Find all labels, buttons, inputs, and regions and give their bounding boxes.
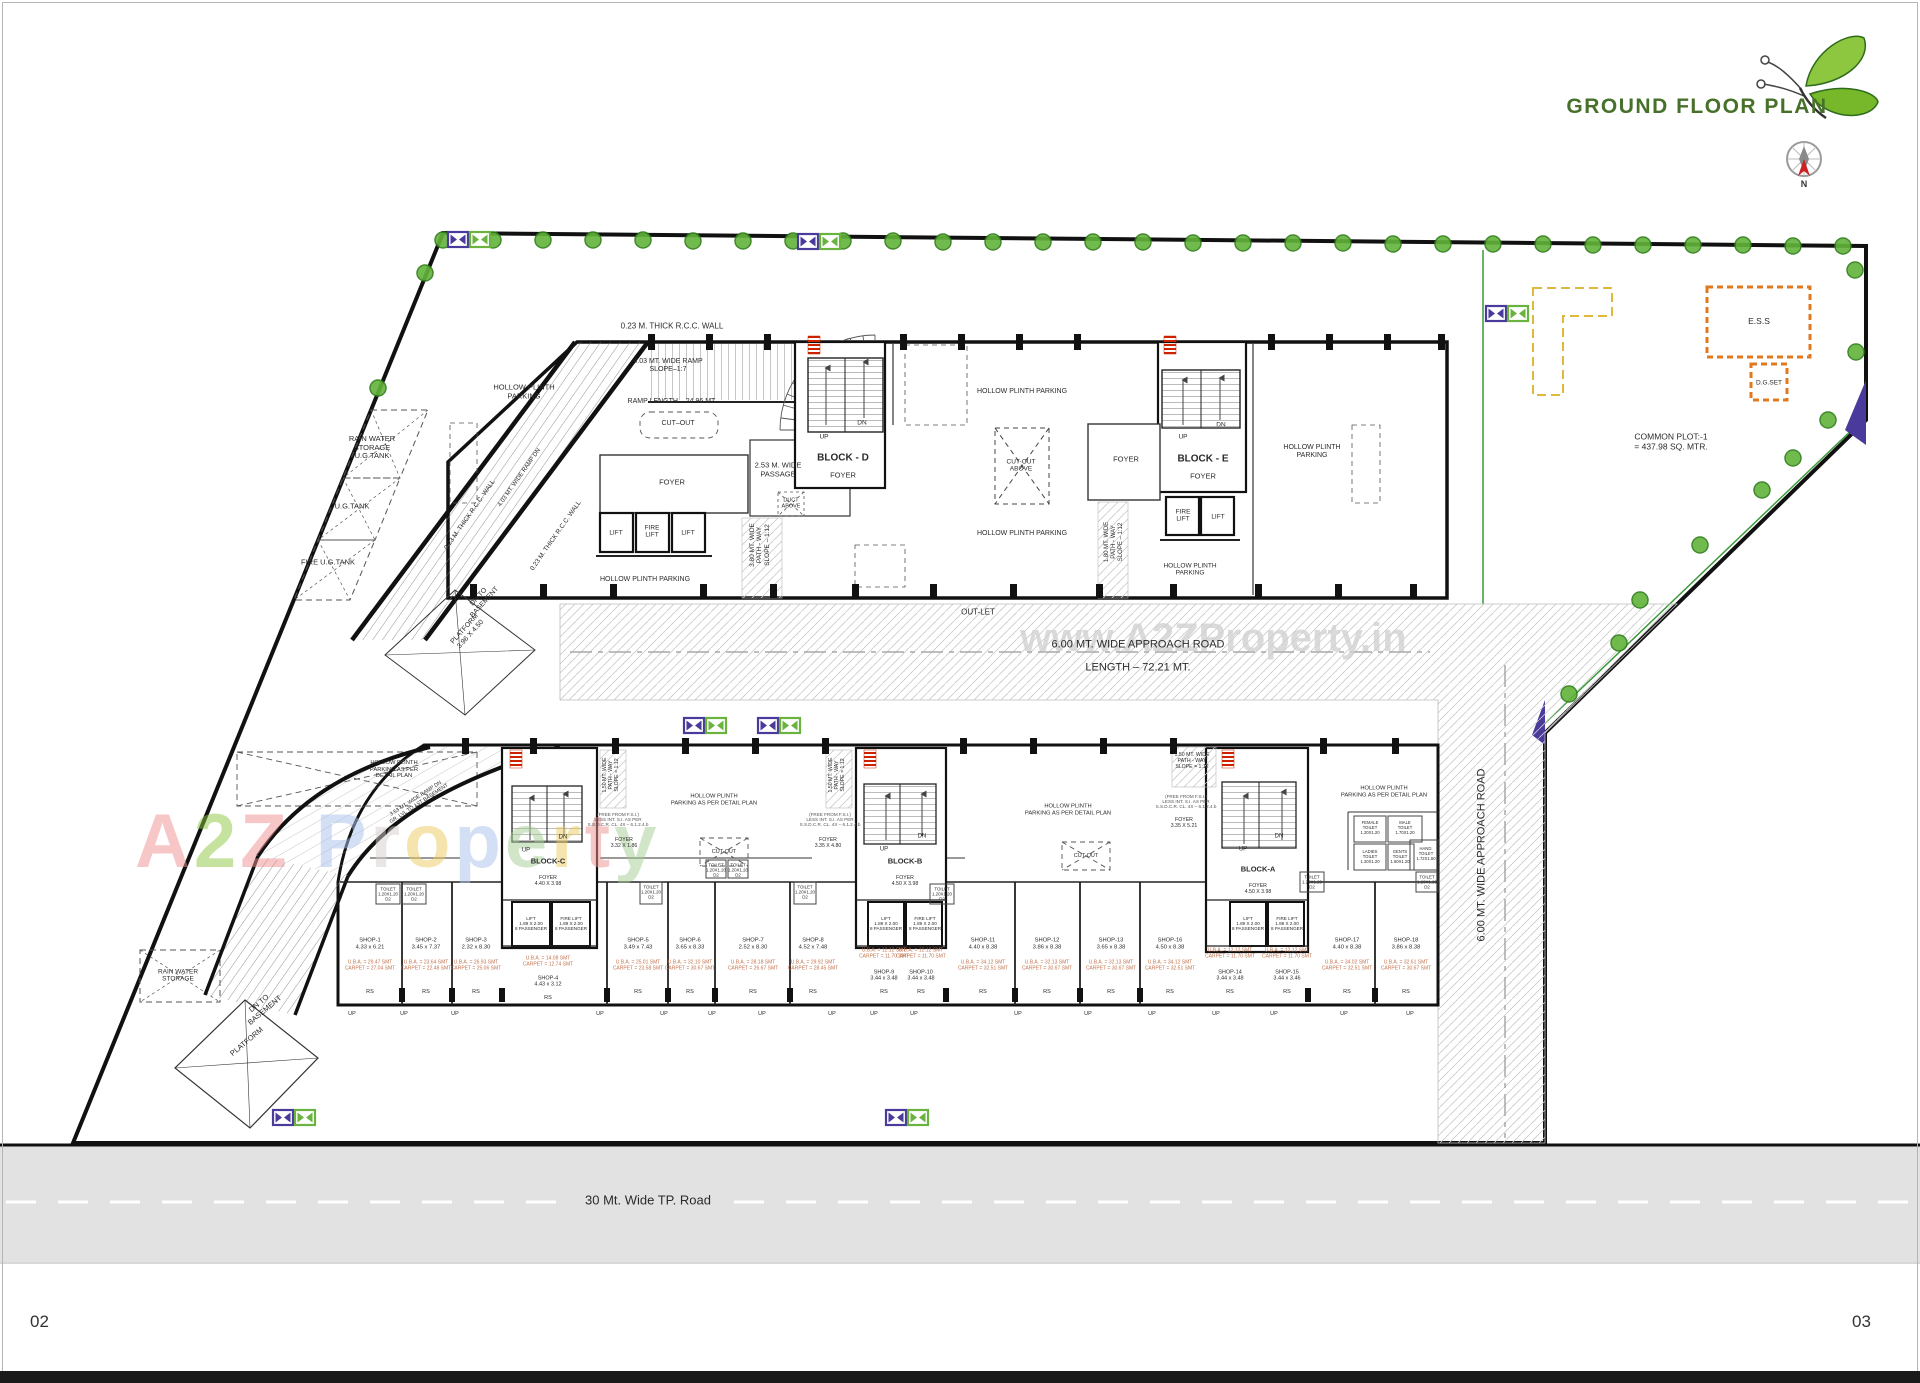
toilet-7: TOILET 1.20X1.20 D2 <box>932 886 952 901</box>
rs-15: RS <box>1226 989 1234 995</box>
ladies-toilet: LADIES TOILET 1.20X1.20 <box>1360 850 1379 864</box>
fire-lift-b: FIRE LIFT 1.89 X 2.00 8 PASSENGER <box>909 916 941 932</box>
shop-3-label: SHOP-3 2.32 x 8.30 <box>462 937 491 950</box>
shop-10-metrics: U.B.A. = 12.12 SMT CARPET = 11.70 SMT <box>896 948 946 959</box>
rs-9: RS <box>880 989 888 995</box>
shop-4-metrics: U.B.A. = 14.08 SMT CARPET = 12.74 SMT <box>523 956 573 967</box>
block-b-foyer: FOYER 4.50 X 3.98 <box>892 876 919 888</box>
shop-17-metrics: U.B.A. = 34.02 SMT CARPET = 32.51 SMT <box>1322 960 1372 971</box>
pathway-150-note-c: 1.50 MT. WIDE PATH - WAY SLOPE = 1:12 <box>1175 753 1210 771</box>
fire-lift-a: FIRE LIFT 1.89 X 2.00 8 PASSENGER <box>1271 916 1303 932</box>
floor-plan-page: A2Z Property www.A2ZProperty.in 0.23 M. … <box>0 0 1920 1383</box>
shop-13-label: SHOP-13 3.65 x 8.38 <box>1097 937 1126 950</box>
block-d-title: BLOCK - D <box>817 452 869 463</box>
cutout-above-upper: CUT-OUT ABOVE <box>1007 459 1036 474</box>
up-8: UP <box>828 1011 836 1017</box>
page-title: GROUND FLOOR PLAN <box>1566 95 1828 119</box>
lift-e: LIFT <box>1211 513 1224 520</box>
shop-12-label: SHOP-12 3.86 x 8.38 <box>1033 937 1062 950</box>
stair-up-block-e: UP <box>1178 433 1187 440</box>
shop-15-metrics: U.B.A. = 12.12 SMT CARPET = 11.70 SMT <box>1262 948 1312 959</box>
stair-up-block-b: UP <box>880 847 888 854</box>
up-7: UP <box>758 1011 766 1017</box>
stair-up-block-a: UP <box>1239 847 1247 854</box>
rs-1: RS <box>366 989 374 995</box>
rs-17: RS <box>1343 989 1351 995</box>
lift-a: LIFT 1.89 X 2.00 8 PASSENGER <box>1232 916 1264 932</box>
shop-5-metrics: U.B.A. = 25.01 SMT CARPET = 23.58 SMT <box>613 960 663 971</box>
shop-8-metrics: U.B.A. = 29.92 SMT CARPET = 28.45 SMT <box>788 960 838 971</box>
rs-2: RS <box>422 989 430 995</box>
shop-2-label: SHOP-2 3.45 x 7.37 <box>412 937 441 950</box>
shop-14-label: SHOP-14 3.44 x 3.48 <box>1216 970 1243 983</box>
rs-7: RS <box>749 989 757 995</box>
cutout-lower-2: CUT-OUT <box>1074 853 1098 859</box>
up-2: UP <box>400 1011 408 1017</box>
gents-toilet: GENTS TOILET 1.50X1.20 <box>1390 850 1409 864</box>
hollow-plinth-detail-3: HOLLOW PLINTH PARKING AS PER DETAIL PLAN <box>1025 803 1111 816</box>
hollow-plinth-parking-upper-left: HOLLOW PLINTH PARKING <box>493 383 554 400</box>
pathway-180-note: 1.80 MT. WIDE PATH - WAY SLOPE – 1:12 <box>1104 522 1124 562</box>
shop-17-label: SHOP-17 4.40 x 8.38 <box>1333 937 1362 950</box>
up-12: UP <box>1084 1011 1092 1017</box>
toilet-4: TOILET 1.20X1.20 D2 <box>706 862 726 877</box>
shop-6-label: SHOP-6 3.65 x 8.33 <box>676 937 705 950</box>
rs-16: RS <box>1283 989 1291 995</box>
stair-dn-block-a: DN <box>1275 834 1284 841</box>
foyer-note-2: (FREE FROM F.S.I.) LESS INT. S.I. AS PER… <box>800 812 861 828</box>
stair-dn-block-b: DN <box>918 834 927 841</box>
rs-3: RS <box>472 989 480 995</box>
rs-10: RS <box>917 989 925 995</box>
tp-road <box>0 1145 1920 1264</box>
lift-2: LIFT <box>681 529 694 536</box>
shop-1-metrics: U.B.A. = 29.47 SMT CARPET = 27.04 SMT <box>345 960 395 971</box>
lift-b: LIFT 1.89 X 2.00 8 PASSENGER <box>870 916 902 932</box>
block-c-foyer: FOYER 4.40 X 3.98 <box>535 876 562 888</box>
block-b-title: BLOCK-B <box>888 858 923 867</box>
toilet-6: TOILET 1.20X1.20 D2 <box>795 884 815 899</box>
female-toilet: FEMALE TOILET 1.20X1.20 <box>1360 821 1379 835</box>
shop-18-metrics: U.B.A. = 32.61 SMT CARPET = 30.67 SMT <box>1381 960 1431 971</box>
compass-icon <box>1787 142 1821 176</box>
foyer-note-3: (FREE FROM F.S.I.) LESS INT. S.I. AS PER… <box>1156 794 1217 810</box>
toilet-2: TOILET 1.20X1.20 D2 <box>404 886 424 901</box>
shop-12-metrics: U.B.A. = 32.13 SMT CARPET = 30.67 SMT <box>1022 960 1072 971</box>
hollow-plinth-detail-1: HOLLOW PLINTH PARKING AS PER DETAIL PLAN <box>370 760 418 780</box>
shop-18-label: SHOP-18 3.86 x 8.38 <box>1392 937 1421 950</box>
toilet-9: TOILET 1.20X1.20 D2 <box>1417 874 1437 889</box>
compass-north-label: N <box>1801 179 1808 189</box>
shop-13-metrics: U.B.A. = 32.13 SMT CARPET = 30.67 SMT <box>1086 960 1136 971</box>
stair-dn-block-c: DN <box>559 835 568 842</box>
pathway-380-note: 3.80 MT. WIDE PATH - WAY SLOPE – 1:12 <box>749 523 771 567</box>
hand-toilet: HAND. TOILET 1.72X1.50 <box>1416 847 1435 861</box>
shop-16-label: SHOP-16 4.50 x 8.38 <box>1156 937 1185 950</box>
hollow-plinth-parking-upper-right: HOLLOW PLINTH PARKING <box>1283 444 1340 460</box>
hollow-plinth-parking-upper-mid-top: HOLLOW PLINTH PARKING <box>977 388 1067 396</box>
rs-14: RS <box>1166 989 1174 995</box>
floor-plan-drawing <box>0 0 1920 1383</box>
block-e-title: BLOCK - E <box>1177 453 1228 464</box>
approach-road-vertical: 6.00 MT. WIDE APPROACH ROAD <box>1476 769 1489 942</box>
rs-8: RS <box>809 989 817 995</box>
shop-15-label: SHOP-15 3.44 x 3.46 <box>1273 970 1300 983</box>
stair-up-block-d: UP <box>819 433 828 440</box>
shop-5-label: SHOP-5 3.49 x 7.43 <box>624 937 653 950</box>
up-6: UP <box>708 1011 716 1017</box>
foyer-dim-1: FOYER 3.32 X 1.86 <box>611 838 638 850</box>
wall-note-top: 0.23 M. THICK R.C.C. WALL <box>621 321 724 330</box>
shop-7-label: SHOP-7 2.52 x 8.30 <box>739 937 768 950</box>
shop-7-metrics: U.B.A. = 28.18 SMT CARPET = 26.67 SMT <box>728 960 778 971</box>
stair-up-block-c: UP <box>522 848 530 855</box>
shop-14-metrics: U.B.A. = 12.12 SMT CARPET = 11.70 SMT <box>1205 948 1255 959</box>
approach-road-label: 6.00 MT. WIDE APPROACH ROAD <box>1052 639 1225 652</box>
passage-note: 2.53 M. WIDE PASSAGE <box>755 461 802 478</box>
male-toilet: MALE TOILET 1.70X1.20 <box>1395 821 1414 835</box>
up-17: UP <box>1406 1011 1414 1017</box>
rs-4: RS <box>544 995 552 1001</box>
up-11: UP <box>1014 1011 1022 1017</box>
ess-label: E.S.S <box>1748 317 1770 327</box>
fire-lift-1: FIRE LIFT <box>645 525 660 540</box>
lift-1: LIFT <box>609 529 622 536</box>
fire-lift-e: FIRE LIFT <box>1176 509 1191 524</box>
shop-1-label: SHOP-1 4.33 x 6.21 <box>356 937 385 950</box>
up-3: UP <box>451 1011 459 1017</box>
shop-2-metrics: U.B.A. = 23.64 SMT CARPET = 22.48 SMT <box>401 960 451 971</box>
cutout-lower-1: CUT-OUT <box>712 849 736 855</box>
toilet-1: TOILET 1.20X1.20 D2 <box>378 886 398 901</box>
rs-18: RS <box>1402 989 1410 995</box>
pathway-150-note-a: 1.50 MT. WIDE PATH - WAY SLOPE = 1:12 <box>603 758 621 793</box>
cutout-upper-label: CUT–OUT <box>661 420 694 428</box>
block-a-title: BLOCK-A <box>1241 866 1276 875</box>
up-5: UP <box>660 1011 668 1017</box>
shop-4-label: SHOP-4 4.43 x 3.12 <box>534 976 561 989</box>
block-c-title: BLOCK-C <box>531 858 566 867</box>
rs-11: RS <box>979 989 987 995</box>
fire-lift-c: FIRE LIFT 1.89 X 2.00 8 PASSENGER <box>555 916 587 932</box>
ramp-width-note: 4.03 MT. WIDE RAMP SLOPE–1:7 <box>633 358 702 374</box>
dg-set-label: D.G.SET <box>1756 379 1782 386</box>
stair-dn-block-e: DN <box>1216 421 1225 428</box>
shop-16-metrics: U.B.A. = 34.12 SMT CARPET = 32.51 SMT <box>1145 960 1195 971</box>
shop-3-metrics: U.B.A. = 26.93 SMT CARPET = 25.06 SMT <box>451 960 501 971</box>
foyer-note-1: (FREE FROM F.S.I.) LESS INT. S.I. AS PER… <box>588 812 649 828</box>
up-13: UP <box>1148 1011 1156 1017</box>
shop-6-metrics: U.B.A. = 32.10 SMT CARPET = 30.67 SMT <box>665 960 715 971</box>
stair-dn-block-d: DN <box>857 419 866 426</box>
foyer-upper-left: FOYER <box>659 479 685 488</box>
page-number-right: 03 <box>1852 1312 1871 1332</box>
rs-13: RS <box>1107 989 1115 995</box>
foyer-dim-2: FOYER 3.35 X 4.80 <box>815 838 842 850</box>
shop-11-metrics: U.B.A. = 34.12 SMT CARPET = 32.51 SMT <box>958 960 1008 971</box>
rs-5: RS <box>634 989 642 995</box>
shop-10-label: SHOP-10 3.44 x 3.48 <box>907 970 934 983</box>
fire-ug-tank-label: FIRE U.G.TANK <box>301 559 355 568</box>
up-1: UP <box>348 1011 356 1017</box>
shop-9-label: SHOP-9 3.44 x 3.48 <box>870 970 897 983</box>
toilet-3: TOILET 1.20X1.20 D2 <box>641 884 661 899</box>
lift-c: LIFT 1.89 X 2.00 8 PASSENGER <box>515 916 547 932</box>
block-a-foyer: FOYER 4.50 X 3.98 <box>1245 884 1272 896</box>
ramp-length-note: RAMP LENGTH – 24.96 MT. <box>628 398 717 406</box>
page-number-left: 02 <box>30 1312 49 1332</box>
rain-water-tank-label: RAIN WATER STORAGE U.G.TANK <box>349 435 395 461</box>
up-4: UP <box>596 1011 604 1017</box>
rain-water-storage-lower: RAIN WATER STORAGE <box>158 969 198 984</box>
ug-tank-label: U.G.TANK <box>335 503 370 512</box>
hollow-plinth-parking-below-e: HOLLOW PLINTH PARKING <box>1163 563 1216 578</box>
rs-6: RS <box>686 989 694 995</box>
toilet-5: TOILET 1.20X1.20 D2 <box>728 862 748 877</box>
up-10: UP <box>910 1011 918 1017</box>
shop-11-label: SHOP-11 4.40 x 8.38 <box>969 937 998 950</box>
duct-above-note: DUCT ABOVE <box>782 498 801 511</box>
foyer-upper-mid: FOYER <box>1113 456 1139 465</box>
approach-road-length: LENGTH – 72.21 MT. <box>1085 662 1190 675</box>
pathway-150-note-b: 1.50 MT. WIDE PATH - WAY SLOPE = 1:12 <box>829 758 847 793</box>
toilet-8: TOILET 1.20X1.20 D2 <box>1302 874 1322 889</box>
tp-road-label: 30 Mt. Wide TP. Road <box>575 1193 721 1210</box>
common-plot-label: COMMON PLOT:-1 = 437.98 SQ. MTR. <box>1634 432 1707 451</box>
block-d-foyer: FOYER <box>830 472 856 481</box>
outlet-label: OUT-LET <box>961 607 995 616</box>
rs-12: RS <box>1043 989 1051 995</box>
up-16: UP <box>1340 1011 1348 1017</box>
up-15: UP <box>1270 1011 1278 1017</box>
shop-8-label: SHOP-8 4.52 x 7.48 <box>799 937 828 950</box>
up-14: UP <box>1212 1011 1220 1017</box>
hollow-plinth-detail-2: HOLLOW PLINTH PARKING AS PER DETAIL PLAN <box>671 793 757 806</box>
foyer-dim-3: FOYER 3.35 X 5.21 <box>1171 818 1198 830</box>
hollow-plinth-parking-upper-mid-low: HOLLOW PLINTH PARKING <box>600 576 690 584</box>
bottom-bar <box>0 1371 1920 1383</box>
hollow-plinth-detail-4: HOLLOW PLINTH PARKING AS PER DETAIL PLAN <box>1341 785 1427 798</box>
block-e-foyer: FOYER <box>1190 473 1216 482</box>
hollow-plinth-parking-upper-mid2: HOLLOW PLINTH PARKING <box>977 530 1067 538</box>
up-9: UP <box>870 1011 878 1017</box>
